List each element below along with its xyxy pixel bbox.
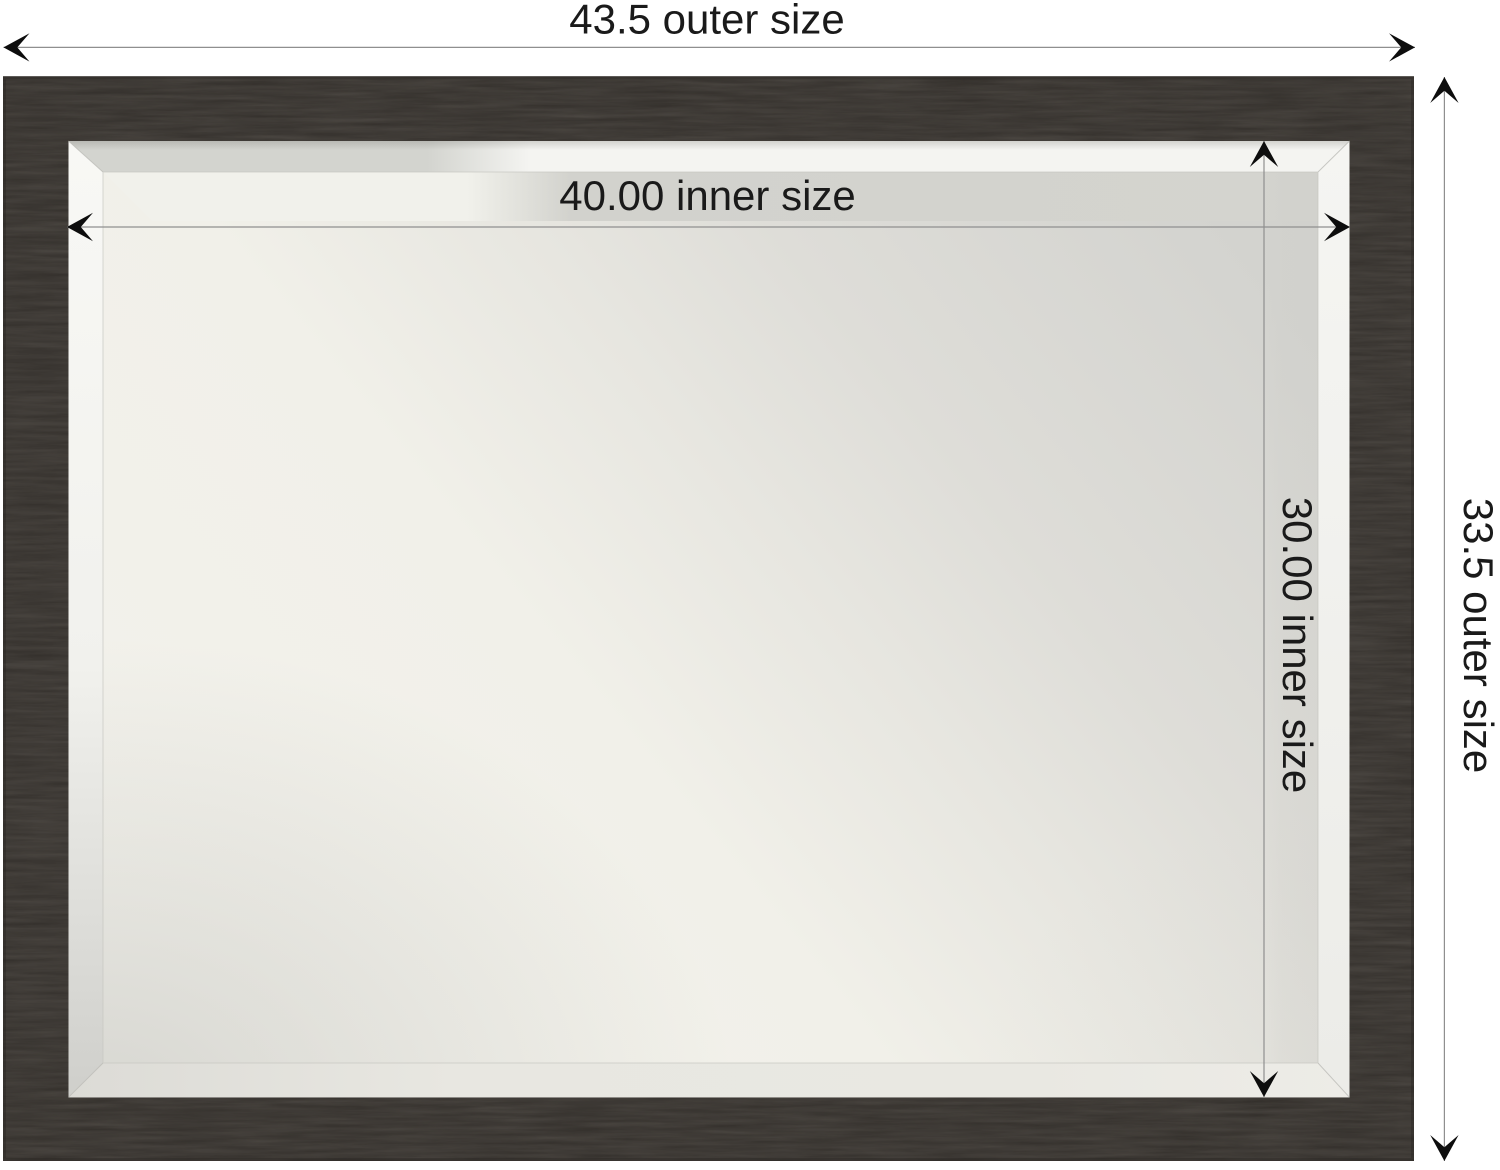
svg-text:40.00 inner size: 40.00 inner size xyxy=(559,172,856,219)
svg-text:33.5 outer size: 33.5 outer size xyxy=(1455,498,1500,774)
svg-text:30.00 inner size: 30.00 inner size xyxy=(1274,497,1321,794)
svg-text:43.5 outer size: 43.5 outer size xyxy=(569,0,845,42)
